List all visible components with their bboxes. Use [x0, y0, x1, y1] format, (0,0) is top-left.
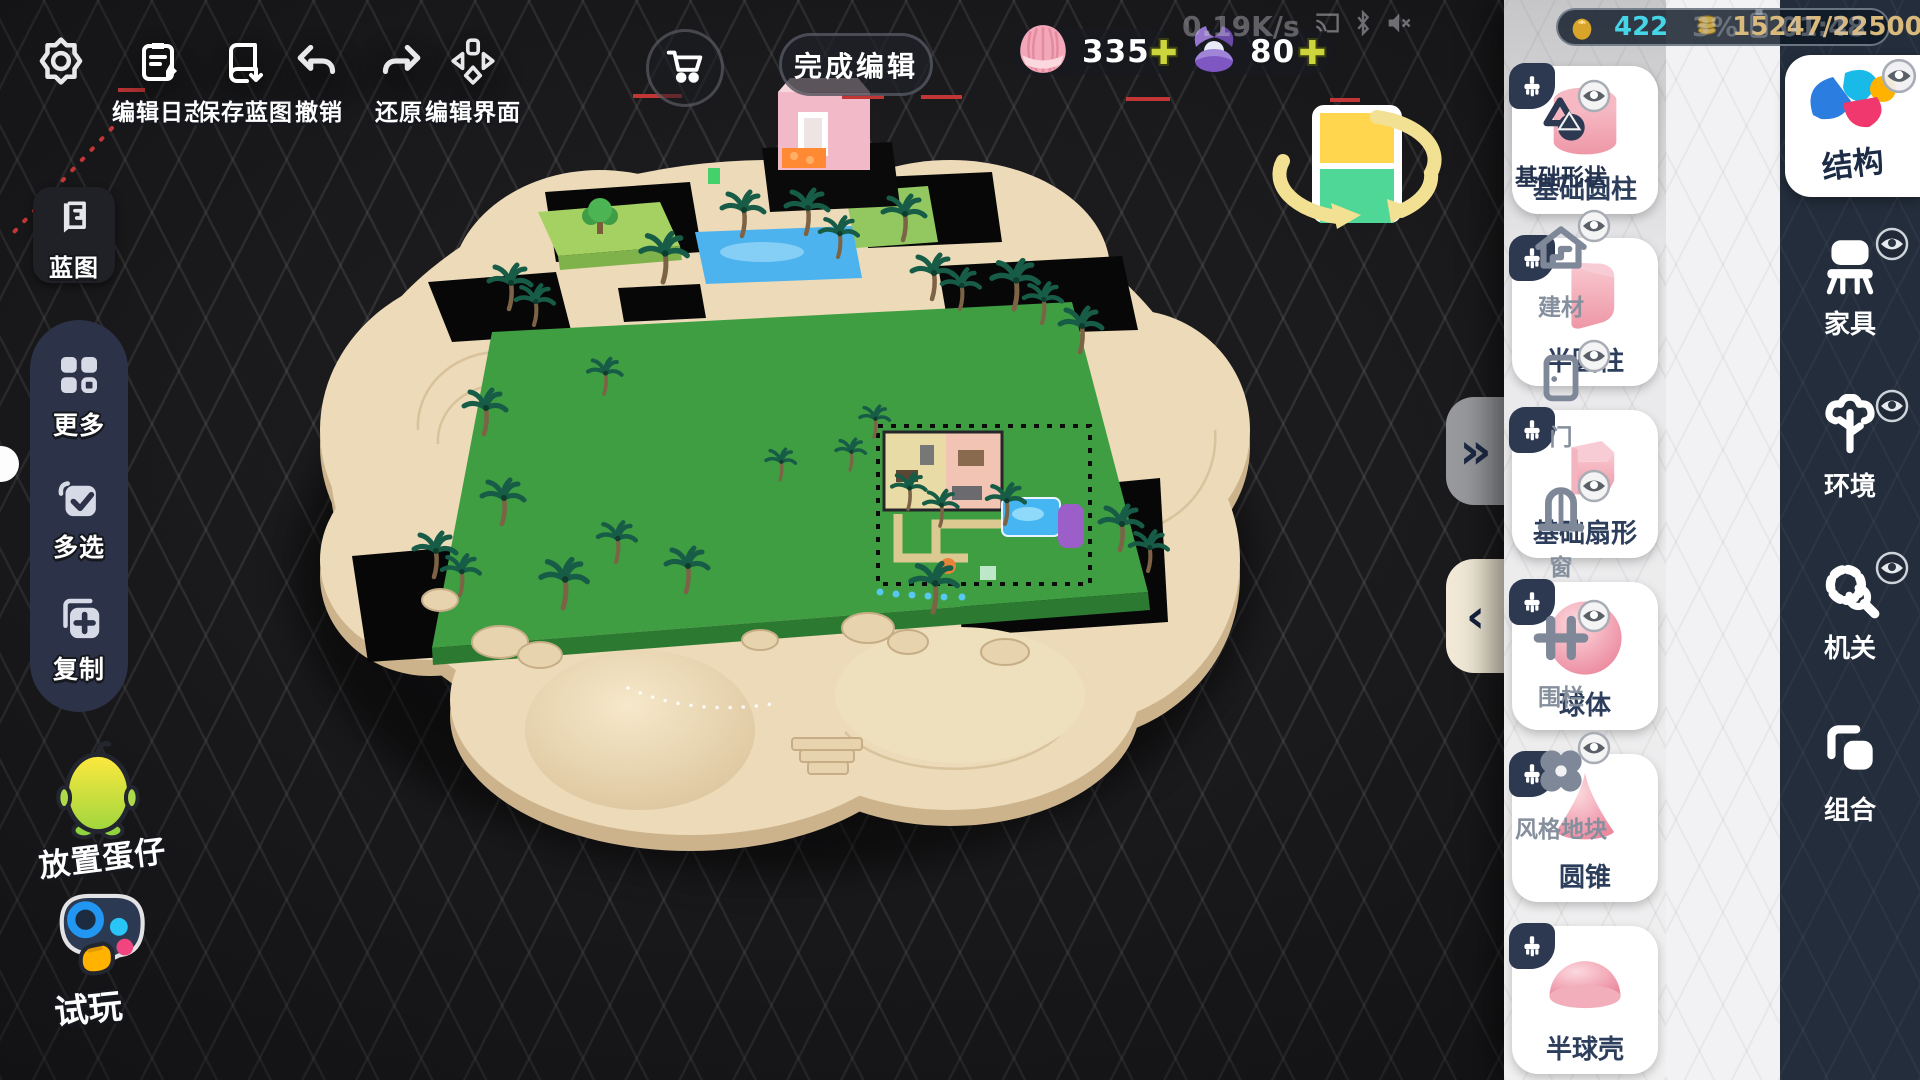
- copy-button[interactable]: 复制: [52, 592, 106, 686]
- subcat-doors[interactable]: 门: [1504, 346, 1618, 452]
- small-green-block: [708, 168, 720, 184]
- more-button[interactable]: 更多: [52, 348, 106, 442]
- visibility-eye-icon[interactable]: [1880, 57, 1918, 99]
- combination-label: 组合: [1824, 790, 1876, 827]
- gear-icon: [34, 73, 88, 92]
- gold-egg-icon: [1568, 14, 1596, 46]
- resource-pill[interactable]: 422 15247/22500: [1556, 8, 1890, 46]
- visibility-eye-icon[interactable]: [1576, 208, 1612, 248]
- subcat-windows[interactable]: 窗: [1504, 476, 1618, 582]
- panel-collapse-tab[interactable]: ‹: [1446, 559, 1505, 673]
- subcat-basic-shapes[interactable]: 基础形状: [1504, 86, 1618, 192]
- undo-label: 撤销: [295, 93, 343, 127]
- multi-select-icon: [52, 470, 106, 528]
- add-shells-button[interactable]: ✚: [1150, 36, 1178, 69]
- mechanism-label: 机关: [1824, 628, 1876, 665]
- pearl-currency-pill[interactable]: 80 ✚: [1184, 29, 1332, 75]
- edit-ui-button[interactable]: 编辑界面: [425, 36, 521, 127]
- visibility-eye-icon[interactable]: [1874, 550, 1910, 590]
- panel-expand-tab[interactable]: »: [1446, 397, 1505, 505]
- furniture-label: 家具: [1824, 304, 1876, 341]
- undo-icon: [294, 36, 344, 90]
- visibility-eye-icon[interactable]: [1576, 468, 1612, 508]
- visibility-eye-icon[interactable]: [1874, 388, 1910, 428]
- save-blueprint-icon: [221, 36, 269, 90]
- item-card-hemisphere[interactable]: 半球壳: [1512, 926, 1658, 1074]
- edit-ui-label: 编辑界面: [425, 93, 521, 127]
- tab-structure[interactable]: 结构: [1785, 55, 1920, 197]
- more-grid-icon: [52, 348, 106, 406]
- add-pearls-button[interactable]: ✚: [1298, 36, 1326, 69]
- finish-edit-label: 完成编辑: [794, 45, 918, 85]
- place-egg-button[interactable]: 放置蛋仔: [46, 730, 186, 846]
- test-play-button[interactable]: 试玩: [46, 884, 166, 988]
- subcat-style-blocks[interactable]: 风格地块: [1504, 738, 1618, 844]
- edit-log-icon: [136, 36, 184, 90]
- subcat-fences[interactable]: 围栏: [1504, 606, 1618, 712]
- visibility-eye-icon[interactable]: [1576, 338, 1612, 378]
- chevron-left-icon: ‹: [1466, 589, 1485, 643]
- tab-combination[interactable]: 组合: [1780, 718, 1920, 827]
- egg-count: 422: [1614, 12, 1668, 42]
- more-label: 更多: [53, 406, 105, 442]
- edit-tools-group: 更多 多选 复制: [30, 320, 128, 712]
- double-chevron-right-icon: »: [1459, 422, 1491, 480]
- water-highlight: [720, 242, 804, 262]
- redo-label: 还原: [375, 93, 423, 127]
- combine-icon: [1817, 718, 1883, 788]
- tab-mechanism[interactable]: 机关: [1780, 556, 1920, 665]
- multi-select-button[interactable]: 多选: [52, 470, 106, 564]
- blueprint-button[interactable]: 蓝图: [33, 187, 115, 283]
- visibility-eye-icon[interactable]: [1874, 226, 1910, 266]
- shell-currency-pill[interactable]: 335 ✚: [1012, 29, 1174, 75]
- shell-icon: [1014, 20, 1072, 82]
- pearl-count: 80: [1250, 34, 1295, 70]
- visibility-eye-icon[interactable]: [1576, 598, 1612, 638]
- dpad-icon: [448, 36, 498, 90]
- settings-button[interactable]: [34, 34, 88, 92]
- copy-icon: [52, 592, 106, 650]
- cart-icon: [662, 43, 708, 93]
- sand-mound-2: [835, 627, 1085, 763]
- shell-count: 335: [1082, 34, 1150, 70]
- shop-button[interactable]: [646, 29, 724, 107]
- capacity-count: 15247/22500: [1732, 12, 1920, 42]
- tab-furniture[interactable]: 家具: [1780, 232, 1920, 341]
- map-editor-screen: 编辑日志 保存蓝图 撤销 还原: [0, 0, 1920, 1080]
- subcat-building-materials[interactable]: 建材: [1504, 216, 1618, 322]
- visibility-eye-icon[interactable]: [1576, 78, 1612, 118]
- build-panel: 基础圆柱 半圆柱: [1504, 0, 1920, 1080]
- multi-select-label: 多选: [53, 528, 105, 564]
- subcategory-list: [1666, 0, 1780, 1080]
- green-field: [432, 302, 1148, 648]
- rotate-gizmo[interactable]: [1279, 105, 1434, 229]
- tab-environment[interactable]: 环境: [1780, 394, 1920, 503]
- brush-icon: [1519, 933, 1545, 959]
- blueprint-icon: [52, 195, 96, 245]
- test-play-label: 试玩: [52, 979, 125, 1035]
- coin-stack-icon: [1694, 12, 1720, 42]
- blueprint-label: 蓝图: [49, 248, 99, 283]
- environment-label: 环境: [1824, 466, 1876, 503]
- sand-mound: [525, 650, 755, 810]
- visibility-eye-icon[interactable]: [1576, 730, 1612, 770]
- pearl-clam-icon: [1186, 20, 1242, 80]
- finish-edit-button[interactable]: 完成编辑: [779, 33, 933, 96]
- copy-label: 复制: [53, 650, 105, 686]
